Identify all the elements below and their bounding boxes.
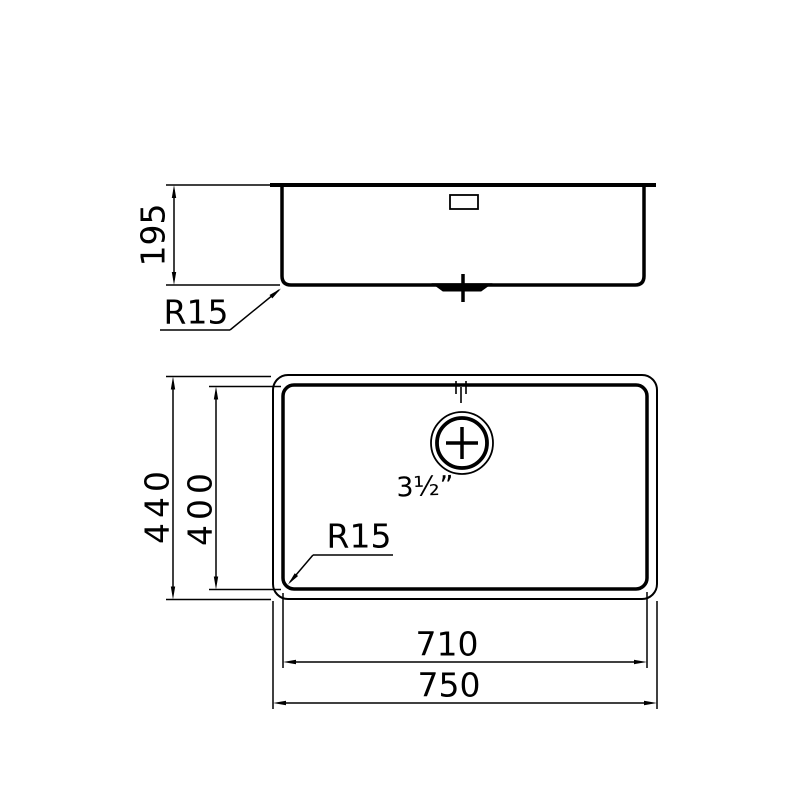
arrowhead (270, 289, 282, 299)
arrowhead (171, 587, 175, 600)
arrowhead (644, 701, 657, 705)
overall-width-label: 750 (418, 669, 481, 702)
plan-bowl-rect (283, 385, 647, 589)
arrowhead (171, 377, 175, 390)
arrowhead (172, 272, 176, 285)
bowl-width-label: 710 (416, 628, 479, 661)
arrowhead (172, 185, 176, 198)
side-height-label: 195 (137, 204, 170, 267)
arrowhead (214, 577, 218, 590)
plan-outer-rect (273, 375, 657, 599)
arrowhead (634, 660, 647, 664)
arrowhead (214, 387, 218, 400)
bowl-depth-label: 400 (184, 468, 217, 546)
plan-corner-radius-label: R15 (327, 520, 392, 553)
drain-size-label: 3½” (396, 473, 454, 502)
overflow-hole-icon (450, 195, 478, 209)
side-corner-radius-label: R15 (164, 296, 229, 329)
plan-view (273, 375, 657, 599)
dimension-bowl-depth (209, 387, 281, 590)
dimension-side-height (166, 185, 280, 285)
arrowhead (283, 660, 296, 664)
leader-plan-corner-radius (288, 555, 393, 585)
technical-drawing: 195 R15 440 400 710 750 R15 3½” (0, 0, 800, 800)
overall-depth-label: 440 (141, 466, 174, 544)
side-bowl-outline (282, 185, 644, 285)
side-view (270, 185, 656, 302)
sink-drawing-linework (0, 0, 800, 800)
arrowhead (288, 573, 298, 584)
arrowhead (273, 701, 286, 705)
